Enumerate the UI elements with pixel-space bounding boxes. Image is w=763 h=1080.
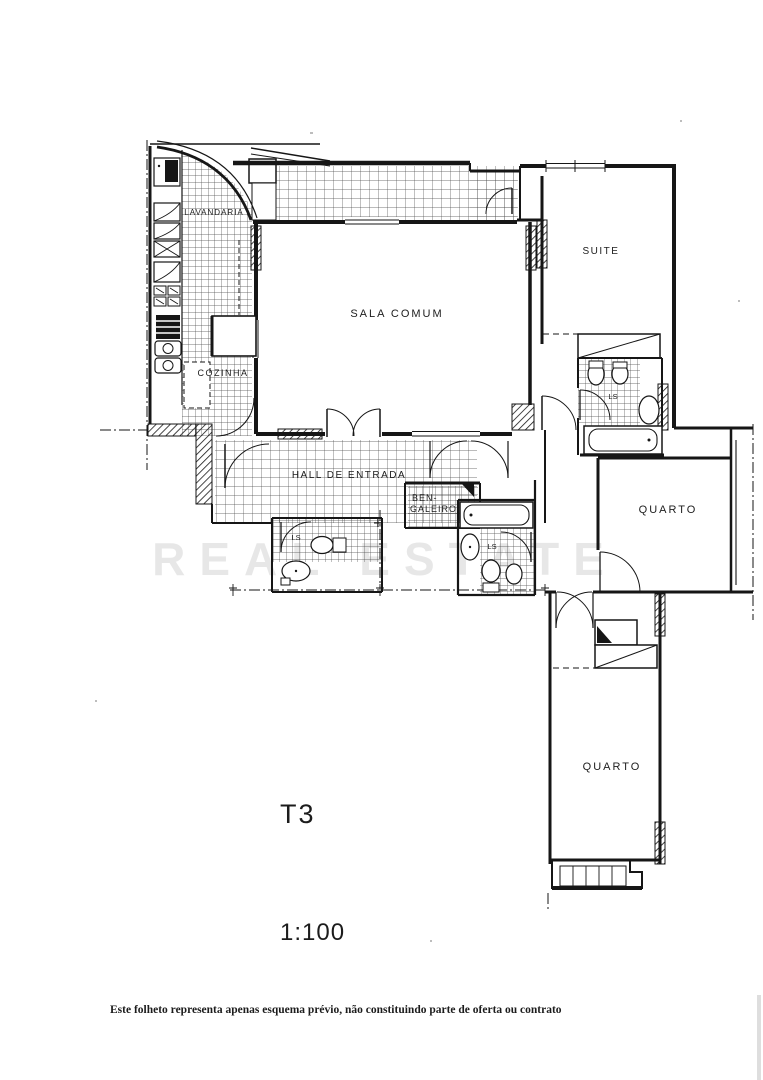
- room-label-sala-comum: SALA COMUM: [350, 308, 443, 320]
- room-label-quarto2: QUARTO: [583, 761, 642, 773]
- room-label-lavandaria: LAVANDARIA: [184, 208, 244, 217]
- balcony: [552, 860, 642, 888]
- disclaimer-text: Este folheto representa apenas esquema p…: [110, 1004, 562, 1016]
- room-label-cozinha: COZINHA: [198, 368, 249, 378]
- ls-label-suite-bathroom: LS: [608, 392, 617, 401]
- room-label-suite: SUITE: [583, 246, 620, 257]
- room-label-quarto1: QUARTO: [639, 504, 698, 516]
- scanned-floorplan-page: REAL ESTATE: [0, 0, 763, 1080]
- scale-label: 1:100: [280, 919, 345, 946]
- ls-label-bathroom2: LS: [487, 542, 496, 551]
- watermark-text: REAL ESTATE: [152, 533, 618, 585]
- ls-label-guest-wc: LS: [291, 533, 300, 542]
- room-label-bengaleiro-line1: BEN-: [412, 493, 438, 503]
- typology-label: T3: [280, 799, 316, 829]
- floor-plan-svg: REAL ESTATE: [0, 0, 763, 1080]
- room-label-bengaleiro-line2: GALEIRO: [410, 504, 457, 514]
- room-label-hall-de-entrada: HALL DE ENTRADA: [292, 470, 406, 481]
